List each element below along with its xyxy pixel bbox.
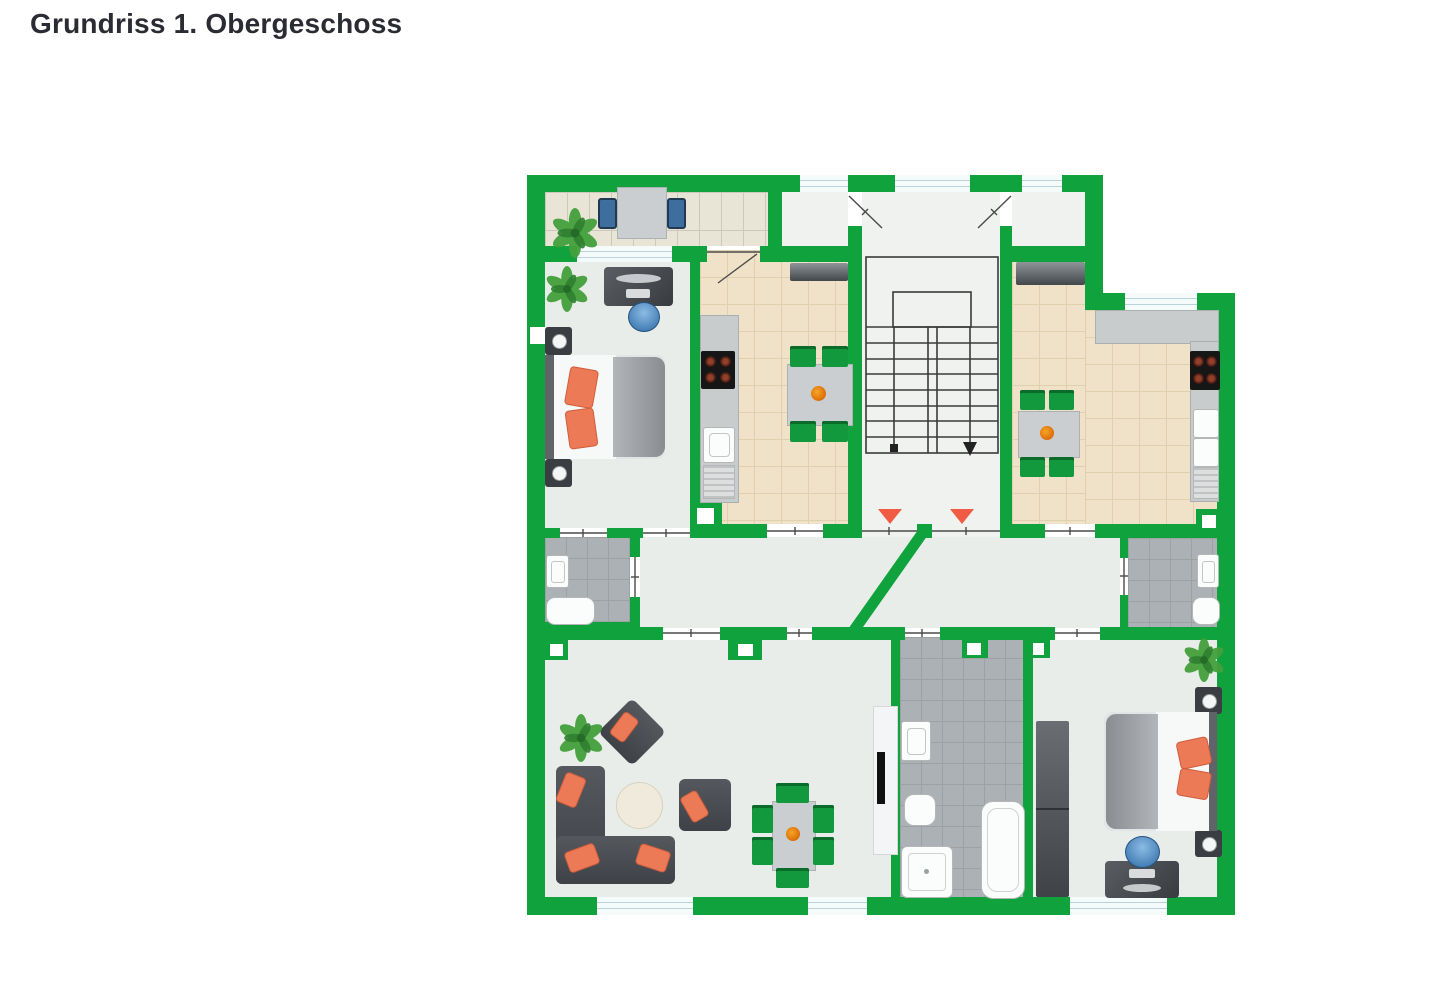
wall <box>1100 627 1217 640</box>
dining-chair <box>776 783 809 803</box>
window <box>597 897 693 915</box>
floor-plan <box>0 0 1440 1004</box>
wall <box>1120 538 1128 558</box>
nightstand <box>545 327 572 355</box>
wall <box>970 175 1022 192</box>
room-floor-vestibule-left <box>782 192 848 246</box>
wall <box>527 175 545 915</box>
shower <box>901 846 953 898</box>
wall <box>545 246 577 262</box>
wall <box>1103 293 1125 310</box>
wall <box>545 528 560 538</box>
sink-drainer <box>1193 467 1219 499</box>
wardrobe <box>790 263 848 281</box>
stove-icon <box>701 351 735 389</box>
wall <box>867 897 1070 915</box>
pillow <box>564 407 598 450</box>
bed <box>545 355 665 459</box>
balcony-chair <box>667 198 686 229</box>
wall <box>1012 246 1085 262</box>
wall <box>527 897 597 915</box>
window <box>800 175 848 192</box>
nightstand <box>545 459 572 487</box>
sink <box>1193 438 1219 467</box>
dining-chair <box>790 346 816 367</box>
fruit-bowl-icon <box>811 386 826 401</box>
wall <box>1000 226 1012 538</box>
pillow <box>609 710 640 743</box>
dining-chair <box>813 837 834 865</box>
dining-chair <box>752 805 773 833</box>
stove-icon <box>1190 351 1220 390</box>
sink-drainer <box>703 465 735 499</box>
wardrobe <box>1016 262 1085 285</box>
wall <box>693 897 808 915</box>
toilet <box>904 794 936 826</box>
fruit-bowl-icon <box>1040 426 1054 440</box>
room-floor-hallway <box>640 537 1120 628</box>
shaft <box>1202 515 1216 528</box>
dining-chair <box>822 346 848 367</box>
pillow <box>1176 767 1212 800</box>
wall <box>1120 595 1128 627</box>
coffee-table <box>616 782 663 829</box>
wall <box>823 524 848 538</box>
wardrobe <box>1036 721 1069 897</box>
room-floor-kitchen-right <box>1012 250 1085 524</box>
window <box>895 175 970 192</box>
wall <box>720 627 787 640</box>
window <box>1125 293 1197 310</box>
room-floor-stairwell <box>862 192 1000 537</box>
nightstand <box>1195 830 1222 857</box>
sink <box>546 555 569 588</box>
keyboard-icon <box>626 289 650 298</box>
kitchen-counter <box>1095 310 1219 344</box>
dining-chair <box>1020 457 1045 477</box>
bed <box>1104 712 1217 831</box>
shaft <box>967 643 981 655</box>
wall <box>545 627 663 640</box>
wall <box>630 537 640 557</box>
window <box>1070 897 1167 915</box>
monitor-icon <box>616 274 661 283</box>
nightstand <box>1195 687 1222 714</box>
pillow <box>679 789 710 824</box>
dining-chair <box>752 837 773 865</box>
fruit-bowl-icon <box>786 827 800 841</box>
dining-chair <box>776 868 809 888</box>
wall <box>722 524 767 538</box>
balcony-table <box>617 187 667 239</box>
wall-niche <box>530 327 545 344</box>
wall <box>848 175 895 192</box>
monitor-icon <box>1123 884 1161 892</box>
shaft <box>550 644 563 656</box>
room-floor-vestibule-right <box>1012 192 1085 246</box>
dining-chair <box>1049 457 1074 477</box>
sink <box>1197 554 1219 588</box>
dining-chair <box>822 421 848 442</box>
shower-tub <box>546 597 595 625</box>
wall <box>917 524 932 538</box>
wall <box>812 627 905 640</box>
wall <box>1085 192 1103 310</box>
wall <box>1062 175 1103 192</box>
toilet <box>1192 597 1220 625</box>
wall <box>1012 524 1045 538</box>
dining-chair <box>790 421 816 442</box>
dining-chair <box>1020 390 1045 410</box>
desk <box>604 267 673 306</box>
window <box>808 897 867 915</box>
armchair <box>679 779 731 831</box>
bathtub <box>981 801 1025 899</box>
dining-chair <box>813 805 834 833</box>
window <box>577 246 672 262</box>
wall <box>768 192 782 246</box>
sink <box>703 427 735 463</box>
shaft <box>697 508 714 524</box>
desk-chair <box>1125 836 1160 868</box>
wall <box>940 627 1055 640</box>
wall <box>1197 293 1235 310</box>
tv-board <box>873 706 898 855</box>
tv-icon <box>877 752 885 804</box>
window <box>1022 175 1062 192</box>
balcony-chair <box>598 198 617 229</box>
wall <box>1167 897 1235 915</box>
desk-chair <box>628 302 660 332</box>
sink <box>901 721 931 761</box>
wall <box>690 246 700 538</box>
sink <box>1193 409 1219 438</box>
dining-chair <box>1049 390 1074 410</box>
keyboard-icon <box>1129 869 1155 878</box>
wall <box>760 246 862 262</box>
shaft <box>738 644 753 656</box>
